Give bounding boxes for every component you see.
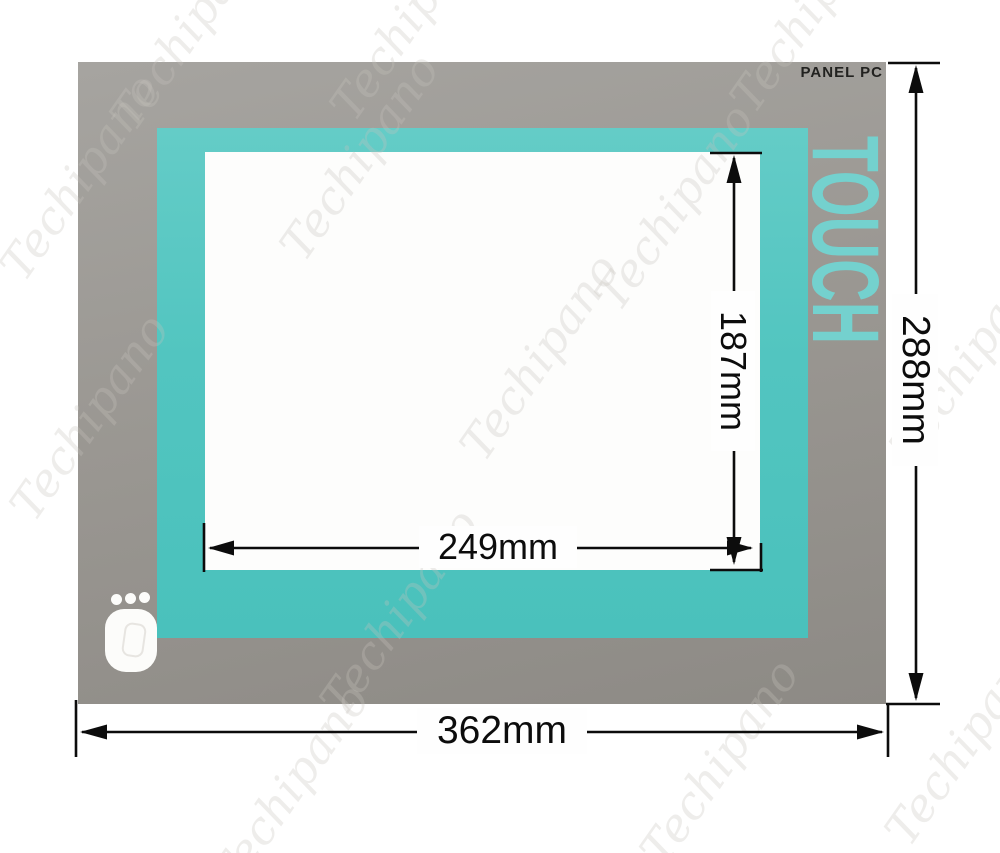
inner-height-dimension-label: 187mm: [711, 291, 755, 451]
product-photo: PANEL PC TOUCH Techipano Techipano Techi…: [0, 0, 1000, 853]
outer-width-dimension-label: 362mm: [417, 708, 587, 754]
outer-height-dimension-label: 288mm: [892, 294, 938, 466]
inner-width-dimension-label: 249mm: [419, 526, 577, 568]
